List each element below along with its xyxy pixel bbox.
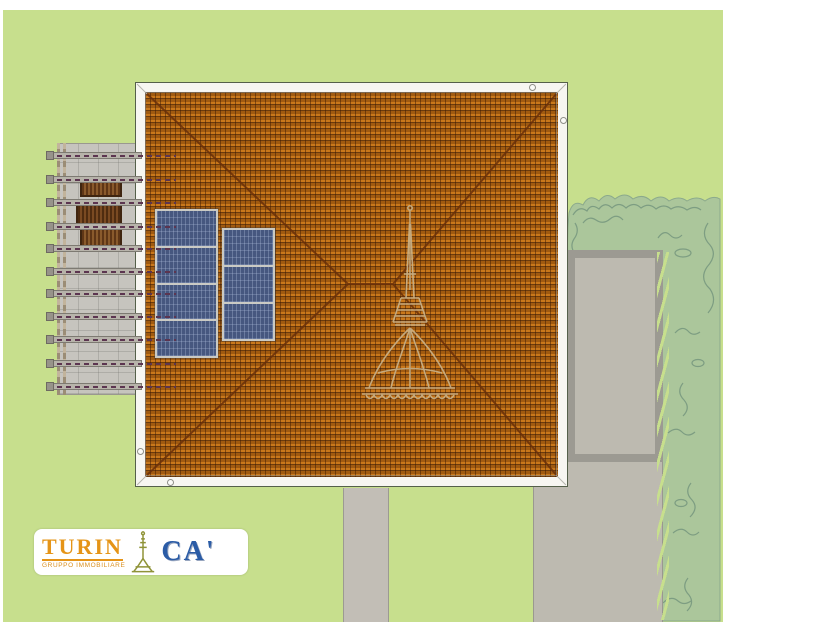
beam-dash-line [48,271,176,273]
beam-end-cap [46,382,54,391]
beam-end-cap [46,312,54,321]
beam-dash-line [48,363,176,365]
solar-module [224,304,273,339]
beam-dash-line [48,179,176,181]
roof-tiles [145,92,558,477]
beam-dash-line [48,248,176,250]
beam-dash-line [48,386,176,388]
turin-wordmark-block: TURIN GRUPPO IMMOBILIARE [42,536,125,569]
beam-end-cap [46,335,54,344]
pergola-beam [46,152,176,159]
patio-surface [575,258,655,454]
site-plan-rendering: TURIN GRUPPO IMMOBILIARE CA' [0,0,840,630]
beam-end-cap [46,359,54,368]
beam-dash-line [48,339,176,341]
ca-wordmark: CA' [161,536,215,568]
roof-vent [167,479,174,486]
pergola-beam [46,360,176,367]
roof-vent [137,448,144,455]
garden-path [343,488,389,622]
beam-dash-line [48,155,176,157]
solar-module [224,230,273,267]
solar-module [157,248,216,285]
solar-module [224,267,273,304]
beam-end-cap [46,222,54,231]
beam-dash-line [48,226,176,228]
beam-end-cap [46,198,54,207]
beam-end-cap [46,151,54,160]
beam-end-cap [46,244,54,253]
pergola-beam [46,223,176,230]
pergola-beam [46,313,176,320]
pergola-beam [46,268,176,275]
patio [567,250,663,462]
roof-vent [560,117,567,124]
turin-wordmark: TURIN [42,536,123,561]
hedge-grass-edge [657,252,669,620]
brand-logo: TURIN GRUPPO IMMOBILIARE CA' [34,529,248,575]
roof [135,82,568,487]
mole-antonelliana-watermark-icon [362,206,458,399]
beam-dash-line [48,316,176,318]
solar-panel-right [222,228,275,341]
mole-antonelliana-icon [129,530,157,574]
pergola-beam [46,176,176,183]
brand-tagline: GRUPPO IMMOBILIARE [42,562,125,569]
pergola-beam [46,383,176,390]
roof-vent [529,84,536,91]
pergola-beam [46,199,176,206]
beam-dash-line [48,293,176,295]
pergola-beam [46,336,176,343]
beam-end-cap [46,289,54,298]
beam-end-cap [46,175,54,184]
pergola-beam [46,245,176,252]
pergola-beam [46,290,176,297]
beam-end-cap [46,267,54,276]
beam-dash-line [48,202,176,204]
